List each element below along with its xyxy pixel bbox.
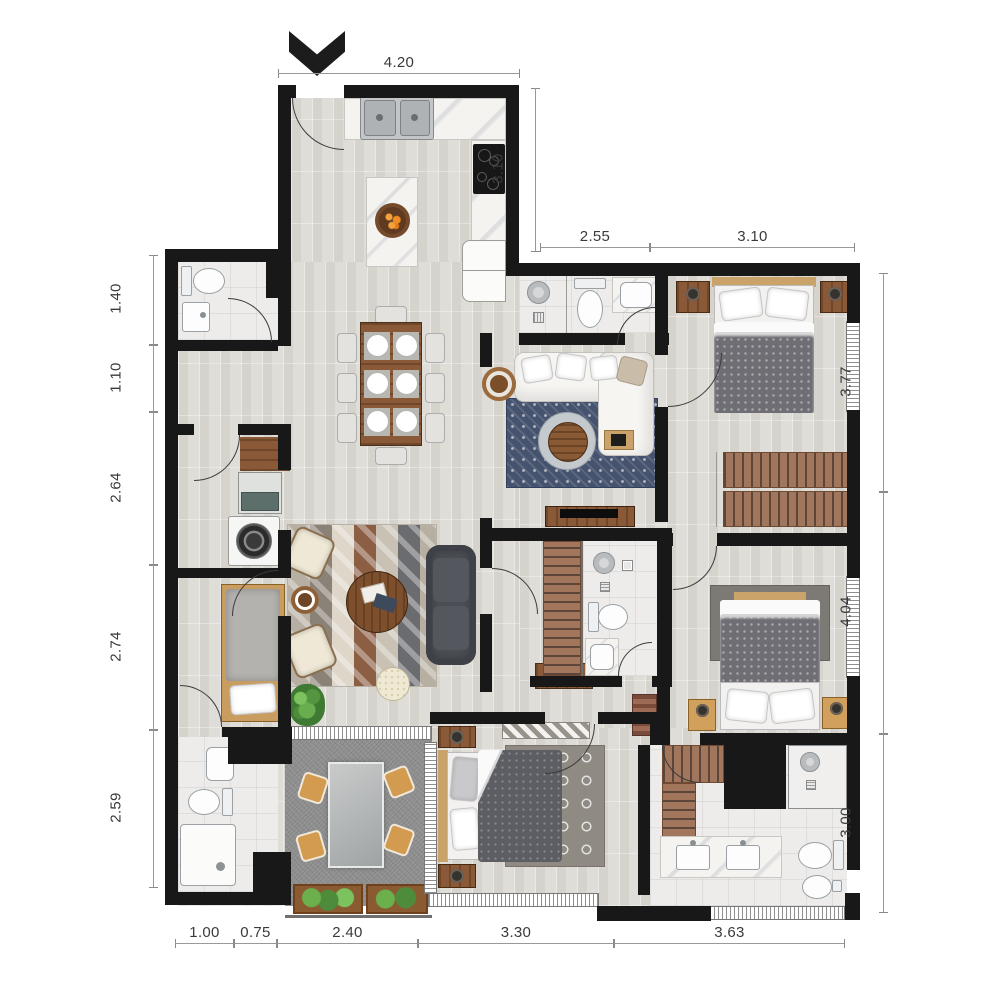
shared-bath-toilet-bowl — [577, 290, 603, 328]
master-shower-drain — [806, 780, 816, 790]
maid-bath-toilet-tank — [222, 788, 233, 816]
middle-closet-rail — [543, 541, 581, 676]
master-vanity-sink-right — [726, 845, 760, 870]
master-faucet-right — [740, 840, 746, 846]
dimension-bath-hall-width: 2.55 — [540, 236, 650, 252]
walkin-closet-rail-side — [662, 783, 696, 839]
dimension-label: 2.55 — [580, 228, 610, 245]
master-shower-head — [800, 752, 820, 772]
maid-bed-pillow — [229, 682, 277, 715]
wall — [278, 430, 291, 470]
refrigerator-door-line — [462, 270, 506, 271]
dimension-top-width: 4.20 — [278, 62, 520, 78]
dimension-label: 3.10 — [737, 228, 767, 245]
wall — [506, 85, 519, 276]
wall — [655, 263, 668, 355]
wall — [655, 407, 668, 522]
bedroom1-duvet — [714, 322, 814, 413]
living-sofa-cushion-2 — [433, 606, 469, 650]
plate-1 — [366, 334, 389, 357]
family-sofa-tray-item — [611, 434, 626, 446]
master-bath-storage-block — [724, 745, 786, 809]
master-pillow-bottom — [449, 807, 481, 851]
dimension-left-5: 2.59 — [142, 730, 158, 888]
planter-box-left — [293, 884, 363, 914]
kitchen-sink-drain-right — [411, 114, 418, 121]
dimension-label: 3.63 — [714, 924, 744, 941]
wall — [266, 262, 278, 298]
wall — [597, 906, 711, 921]
living-sofa-cushion — [433, 558, 469, 602]
maid-bath-toilet-bowl — [188, 789, 220, 815]
dimension-bottom-4: 3.30 — [418, 932, 614, 948]
family-pillow-1 — [520, 354, 554, 385]
maid-bath-shower-tray — [180, 824, 236, 886]
wall — [165, 249, 291, 262]
shared-bath-divider — [566, 276, 567, 333]
wall — [657, 533, 673, 546]
middle-bath-sink — [590, 644, 614, 670]
master-toilet-tank — [833, 840, 844, 870]
wall — [253, 852, 291, 905]
wall — [278, 85, 291, 265]
middle-bath-drain — [600, 582, 610, 592]
dimension-bottom-3: 2.40 — [277, 932, 418, 948]
bedroom1-pillow-right — [764, 287, 809, 322]
closet-bath-divider — [581, 541, 583, 676]
dimension-label: 4.20 — [384, 54, 414, 71]
cooktop-burner-3 — [477, 172, 487, 182]
dimension-right-3: 3.00 — [872, 734, 888, 913]
wall — [530, 676, 622, 687]
wall — [178, 424, 194, 435]
dimension-label: 3.10 — [490, 147, 507, 191]
wall — [492, 528, 672, 541]
dining-chair-right-1 — [425, 333, 445, 363]
wall — [717, 533, 860, 546]
wall — [638, 745, 650, 895]
dining-chair-left-1 — [337, 333, 357, 363]
dimension-left-2: 1.10 — [142, 345, 158, 412]
wall — [480, 518, 492, 568]
bath-bottom-window — [709, 906, 845, 920]
middle-bath-toilet-bowl — [598, 604, 628, 630]
shared-bath-drain — [533, 312, 544, 323]
dimension-label: 2.59 — [108, 786, 125, 830]
wall — [480, 333, 492, 367]
fruit-bowl — [375, 203, 410, 238]
dimension-label: 3.30 — [501, 924, 531, 941]
master-toilet-bowl — [798, 842, 832, 869]
dimension-label: 2.64 — [108, 465, 125, 509]
wall — [847, 410, 860, 578]
dimension-right-1: 3.77 — [872, 273, 888, 492]
dimension-bottom-2: 0.75 — [234, 932, 277, 948]
bedroom2-lamp-right — [830, 702, 843, 715]
powder-sink-faucet — [200, 312, 206, 318]
living-plant — [289, 684, 325, 726]
balcony-rail — [285, 915, 432, 918]
balcony-sliding-door — [285, 726, 432, 740]
dimension-label: 3.77 — [838, 359, 855, 403]
dining-chair-left-2 — [337, 373, 357, 403]
master-bidet — [802, 875, 832, 899]
wall — [278, 530, 291, 570]
family-pillow-2 — [554, 352, 587, 382]
plate-5 — [366, 410, 389, 433]
dimension-right-2: 4.04 — [872, 492, 888, 734]
dimension-left-3: 2.64 — [142, 412, 158, 565]
dining-chair-bottom — [375, 447, 407, 465]
plate-2 — [395, 334, 418, 357]
plate-3 — [366, 372, 389, 395]
wall — [845, 893, 860, 920]
powder-sink — [182, 302, 210, 332]
balcony-table — [328, 762, 384, 868]
dimension-label: 1.10 — [108, 355, 125, 399]
middle-bath-towel-grid — [622, 560, 633, 571]
planter-box-right — [366, 884, 428, 914]
master-lamp-top — [450, 730, 464, 744]
family-side-table — [482, 367, 516, 401]
dimension-label: 1.40 — [108, 277, 125, 321]
floor-plan-canvas: 4.20 3.10 2.55 3.10 1.40 1.10 2.64 2.74 … — [0, 0, 1000, 1000]
bedroom1-lamp-right — [828, 287, 842, 301]
washer-drum — [236, 523, 272, 559]
plate-4 — [395, 372, 418, 395]
master-bidet-tap — [832, 880, 842, 892]
master-faucet-left — [690, 840, 696, 846]
bedroom2-lamp-left — [696, 704, 709, 717]
dimension-label: 4.04 — [838, 590, 855, 634]
wall — [278, 262, 291, 346]
bedroom2-pillow-left — [724, 688, 769, 724]
bedroom1-pillow-left — [718, 286, 764, 322]
dimension-label: 0.75 — [240, 924, 270, 941]
dining-chair-right-3 — [425, 413, 445, 443]
master-pillow-top — [449, 756, 481, 802]
living-pouf — [376, 667, 410, 701]
refrigerator — [462, 240, 506, 302]
wall — [506, 263, 860, 276]
living-side-table — [291, 586, 319, 614]
dimension-bottom-5: 3.63 — [614, 932, 845, 948]
dimension-label: 2.74 — [108, 624, 125, 668]
maid-bath-shower-drain — [216, 862, 225, 871]
floor-plan-page: { "meta": {"type": "apartment-floor-plan… — [0, 0, 1000, 1000]
family-pillow-3 — [589, 355, 619, 382]
master-bottom-window — [428, 893, 599, 907]
wall — [847, 263, 860, 323]
dimension-label: 1.00 — [189, 924, 219, 941]
shared-bath-toilet-tank — [574, 278, 606, 289]
dimension-left-1: 1.40 — [142, 255, 158, 345]
wall — [519, 333, 625, 345]
tv-screen — [560, 509, 618, 518]
wall — [480, 614, 492, 692]
master-balcony-window — [424, 742, 437, 894]
wall — [700, 733, 860, 745]
dining-chair-left-3 — [337, 413, 357, 443]
wall — [650, 712, 662, 745]
dimension-bedroom1-width: 3.10 — [650, 236, 855, 252]
dimension-left-4: 2.74 — [142, 565, 158, 730]
shared-bath-shower-head — [527, 281, 550, 304]
powder-toilet-tank — [181, 266, 192, 296]
master-vanity-sink-left — [676, 845, 710, 870]
wall — [228, 727, 292, 764]
bedroom2-pillow-right — [768, 687, 816, 724]
bedroom1-closet-rail-bottom — [723, 491, 855, 527]
powder-toilet-bowl — [193, 268, 225, 294]
master-lamp-bottom — [450, 869, 464, 883]
wall — [430, 712, 545, 724]
bedroom2-duvet — [720, 600, 820, 684]
plate-6 — [395, 410, 418, 433]
bedroom1-closet-edge — [716, 452, 717, 527]
kitchen-sink-drain-left — [376, 114, 383, 121]
wall — [344, 85, 519, 98]
dimension-label: 3.00 — [838, 800, 855, 844]
shared-bath-sink — [620, 282, 652, 308]
bedroom1-closet-rail-top — [723, 452, 855, 488]
dimension-bottom-1: 1.00 — [175, 932, 234, 948]
dimension-kitchen-depth: 3.10 — [524, 88, 540, 252]
wall — [165, 249, 178, 905]
middle-bath-shower-head — [593, 552, 615, 574]
wall — [278, 616, 291, 732]
dimension-label: 2.40 — [332, 924, 362, 941]
family-coffee-table — [548, 422, 588, 462]
dining-chair-right-2 — [425, 373, 445, 403]
bedroom1-lamp-left — [686, 287, 700, 301]
